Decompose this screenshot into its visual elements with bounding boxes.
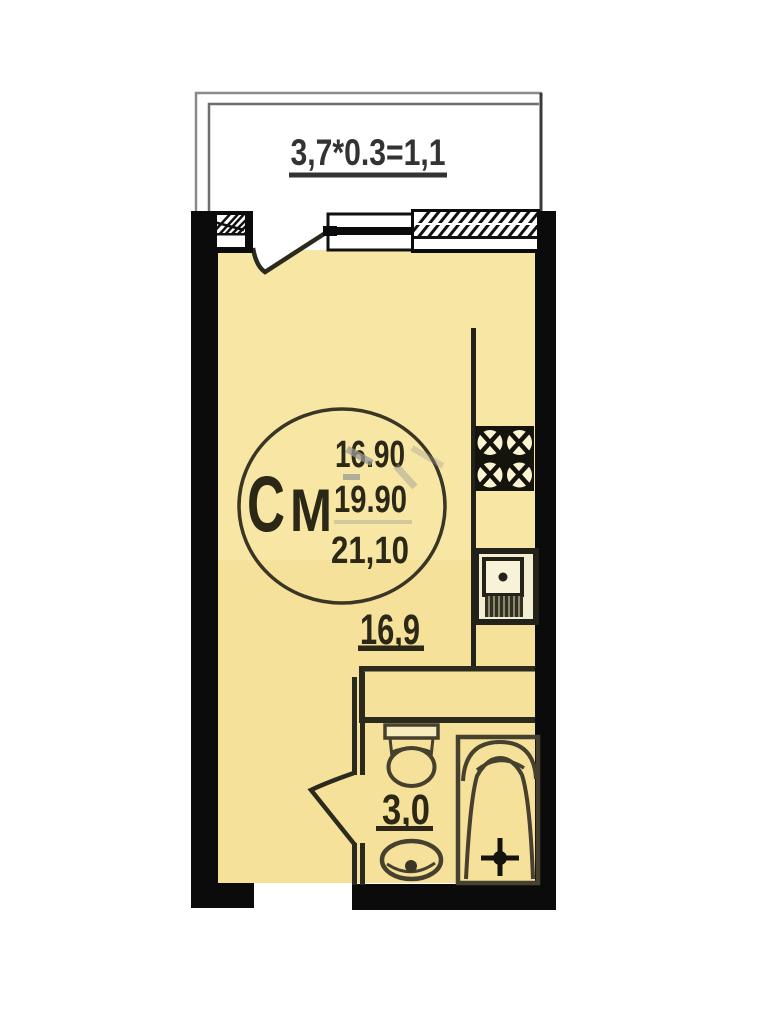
- svg-text:М: М: [290, 477, 332, 544]
- svg-text:21,10: 21,10: [331, 530, 409, 572]
- svg-text:С: С: [247, 459, 285, 548]
- svg-text:3,7*0.3=1,1: 3,7*0.3=1,1: [291, 132, 446, 173]
- svg-text:19.90: 19.90: [334, 479, 407, 521]
- svg-text:16.90: 16.90: [335, 434, 405, 476]
